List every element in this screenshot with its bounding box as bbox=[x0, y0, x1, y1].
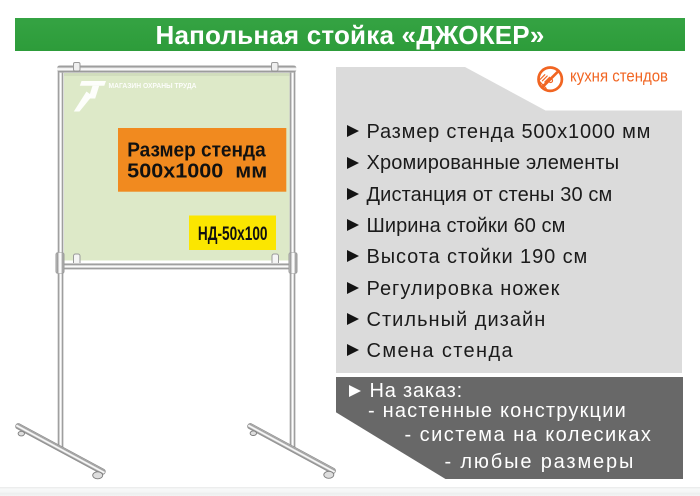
svg-text:Размер стенда: Размер стенда bbox=[127, 140, 266, 162]
svg-text:500x1000 мм: 500x1000 мм bbox=[127, 161, 267, 183]
svg-text:НД-50x100: НД-50x100 bbox=[198, 224, 268, 245]
svg-text:кухня стендов: кухня стендов bbox=[570, 67, 668, 86]
svg-text:МАГАЗИН ОХРАНЫ ТРУДА: МАГАЗИН ОХРАНЫ ТРУДА bbox=[109, 81, 198, 90]
